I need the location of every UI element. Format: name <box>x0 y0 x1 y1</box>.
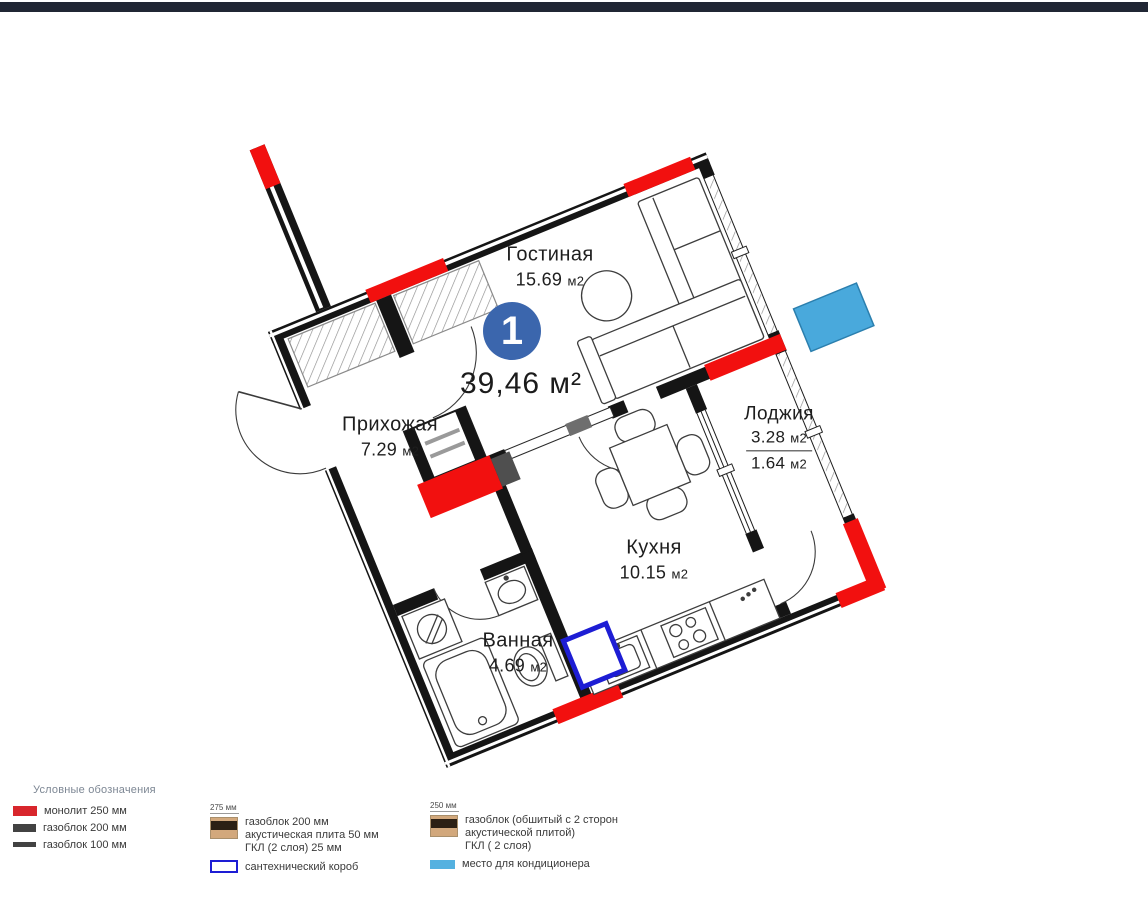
room-area: 4.69 м2 <box>483 656 554 676</box>
unit-number-badge: 1 <box>483 302 541 360</box>
legend-item-ac-place: место для кондиционера <box>430 858 618 870</box>
monolith-swatch <box>13 806 37 816</box>
total-area: 39,46 м² <box>460 367 582 401</box>
legend-label: место для кондиционера <box>462 858 590 870</box>
room-area: 10.15 м2 <box>620 563 689 583</box>
unit-number: 1 <box>501 309 523 354</box>
room-label-bathroom: Ванная 4.69 м2 <box>483 630 554 677</box>
gasblock-200-swatch <box>13 824 36 832</box>
room-name: Кухня <box>620 537 689 559</box>
room-area: 15.69 м2 <box>506 270 593 290</box>
loggia-area-divider <box>746 451 812 452</box>
legend-column-2: 275 мм газоблок 200 мм акустическая плит… <box>210 797 379 873</box>
room-area-half: 1.64 м2 <box>744 454 814 473</box>
floor-plan-drawing <box>0 0 1148 900</box>
ac-unit-place <box>794 283 874 351</box>
room-area: 7.29 м2 <box>342 440 438 460</box>
legend-label: сантехнический короб <box>245 861 358 873</box>
room-name: Лоджия <box>744 403 814 424</box>
legend-label: газоблок (обшитый с 2 сторон акустическо… <box>465 814 618 852</box>
divider-gray-segment <box>565 415 592 436</box>
floor-plan-page: Гостиная 15.69 м2 1 39,46 м² Прихожая 7.… <box>0 0 1148 900</box>
legend-item-plumbing-box: сантехнический короб <box>210 860 379 873</box>
legend-column-3: 250 мм газоблок (обшитый с 2 сторон акус… <box>430 795 618 870</box>
plumbing-box-swatch <box>210 860 238 873</box>
room-label-kitchen: Кухня 10.15 м2 <box>620 537 689 584</box>
legend-label: газоблок 200 мм <box>43 822 127 834</box>
legend-item-acoustic-wall-2: газоблок (обшитый с 2 сторон акустическо… <box>430 814 618 852</box>
room-label-hall: Прихожая 7.29 м2 <box>342 414 438 461</box>
layered-wall-swatch <box>430 815 458 837</box>
legend-column-1: монолит 250 мм газоблок 200 мм газоблок … <box>13 805 127 856</box>
legend-item-acoustic-wall: газоблок 200 мм акустическая плита 50 мм… <box>210 816 379 854</box>
wall-dimension: 250 мм <box>430 801 459 812</box>
room-label-living: Гостиная 15.69 м2 <box>506 244 593 291</box>
gasblock-100-swatch <box>13 842 36 847</box>
room-area: 3.28 м2 <box>744 428 814 447</box>
room-label-loggia: Лоджия 3.28 м2 1.64 м2 <box>744 403 814 472</box>
legend-item-gasblock-100: газоблок 100 мм <box>13 839 127 850</box>
legend-title: Условные обозначения <box>33 784 156 796</box>
room-name: Прихожая <box>342 414 438 436</box>
legend-label: монолит 250 мм <box>44 805 127 817</box>
room-name: Гостиная <box>506 244 593 266</box>
legend-label: газоблок 100 мм <box>43 839 127 851</box>
wall-dimension: 275 мм <box>210 803 239 814</box>
legend-item-monolith: монолит 250 мм <box>13 805 127 816</box>
legend-label: газоблок 200 мм акустическая плита 50 мм… <box>245 816 379 854</box>
room-name: Ванная <box>483 630 554 652</box>
layered-wall-swatch <box>210 817 238 839</box>
ac-swatch <box>430 860 455 869</box>
legend-item-gasblock-200: газоблок 200 мм <box>13 822 127 833</box>
